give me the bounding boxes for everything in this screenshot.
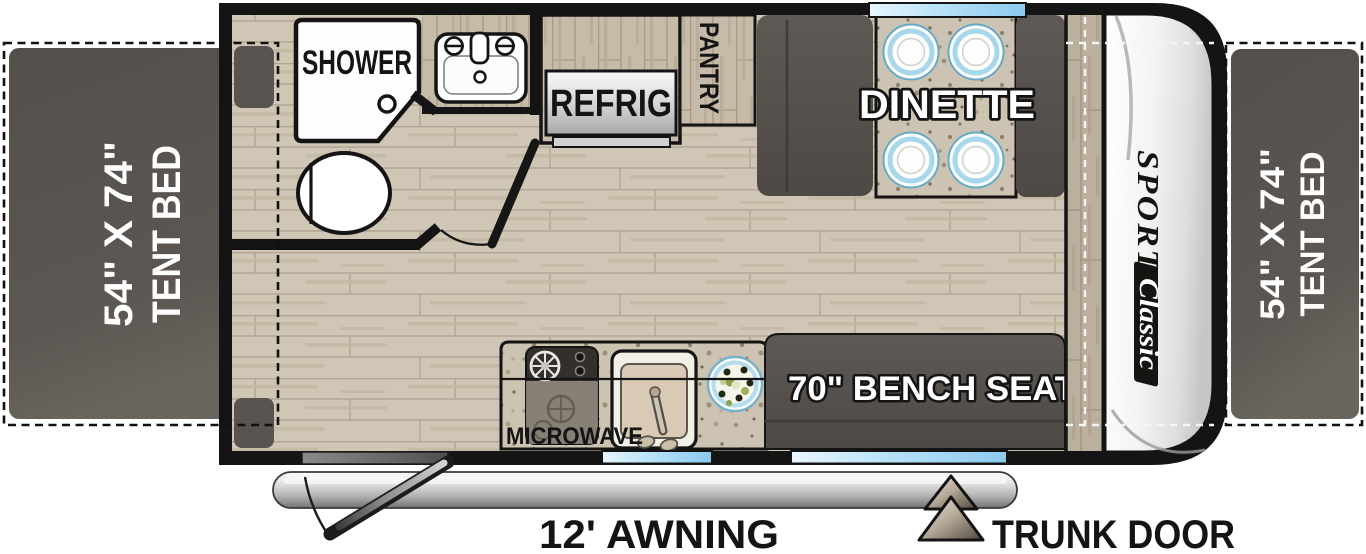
floorplan-svg: 54" X 74" TENT BED 54" X 74" TENT BED SH…: [0, 0, 1366, 554]
trunk-door-label: TRUNK DOOR: [992, 513, 1235, 554]
entry-door-threshold: [302, 452, 448, 464]
awning-label: 12' AWNING: [539, 513, 779, 554]
dinette-window: [869, 3, 1026, 17]
floorplan-canvas: 54" X 74" TENT BED 54" X 74" TENT BED SH…: [0, 0, 1366, 554]
left-bed-size-label: 54" X 74": [97, 141, 141, 327]
bench-seat-label: 70" BENCH SEAT: [788, 370, 1076, 408]
bath-sink-icon: [436, 33, 526, 102]
kitchen-counter: MICROWAVE: [501, 342, 767, 453]
bath-vanity-edge: [422, 107, 542, 114]
brand-logo: SPORTSMEN Classic: [1131, 150, 1166, 387]
dinette: DINETTE: [757, 15, 1065, 197]
refrigerator-vent: [553, 137, 670, 147]
pantry-label: PANTRY: [694, 22, 724, 114]
right-bed-name-label: TENT BED: [1294, 152, 1332, 317]
bench-seat: 70" BENCH SEAT: [765, 334, 1076, 449]
bottom-window-right: [791, 451, 1007, 464]
microwave-label: MICROWAVE: [506, 423, 643, 450]
bed-platform-block-bottom: [234, 398, 274, 448]
salad-bowl-icon: [708, 357, 762, 411]
brand-series-label: Classic: [1134, 278, 1164, 370]
toilet-icon: [298, 153, 390, 233]
pantry-cabinet: PANTRY: [680, 15, 755, 125]
refrigerator-cabinet: REFRIG: [541, 15, 680, 147]
front-cap: SPORTSMEN Classic: [1104, 13, 1214, 453]
bed-platform-block-top: [234, 46, 274, 108]
shower-label: SHOWER: [302, 44, 412, 82]
dinette-bench-left: [757, 15, 873, 196]
shower-drain-icon: [379, 96, 395, 112]
bathroom-wall-bottom: [232, 239, 420, 250]
dinette-label: DINETTE: [859, 83, 1035, 127]
refrigerator-label: REFRIG: [550, 83, 672, 125]
bottom-window-left: [602, 451, 712, 464]
left-bed-name-label: TENT BED: [145, 145, 189, 323]
right-tent-bed: 54" X 74" TENT BED: [1231, 49, 1359, 419]
right-bed-size-label: 54" X 74": [1254, 148, 1292, 320]
